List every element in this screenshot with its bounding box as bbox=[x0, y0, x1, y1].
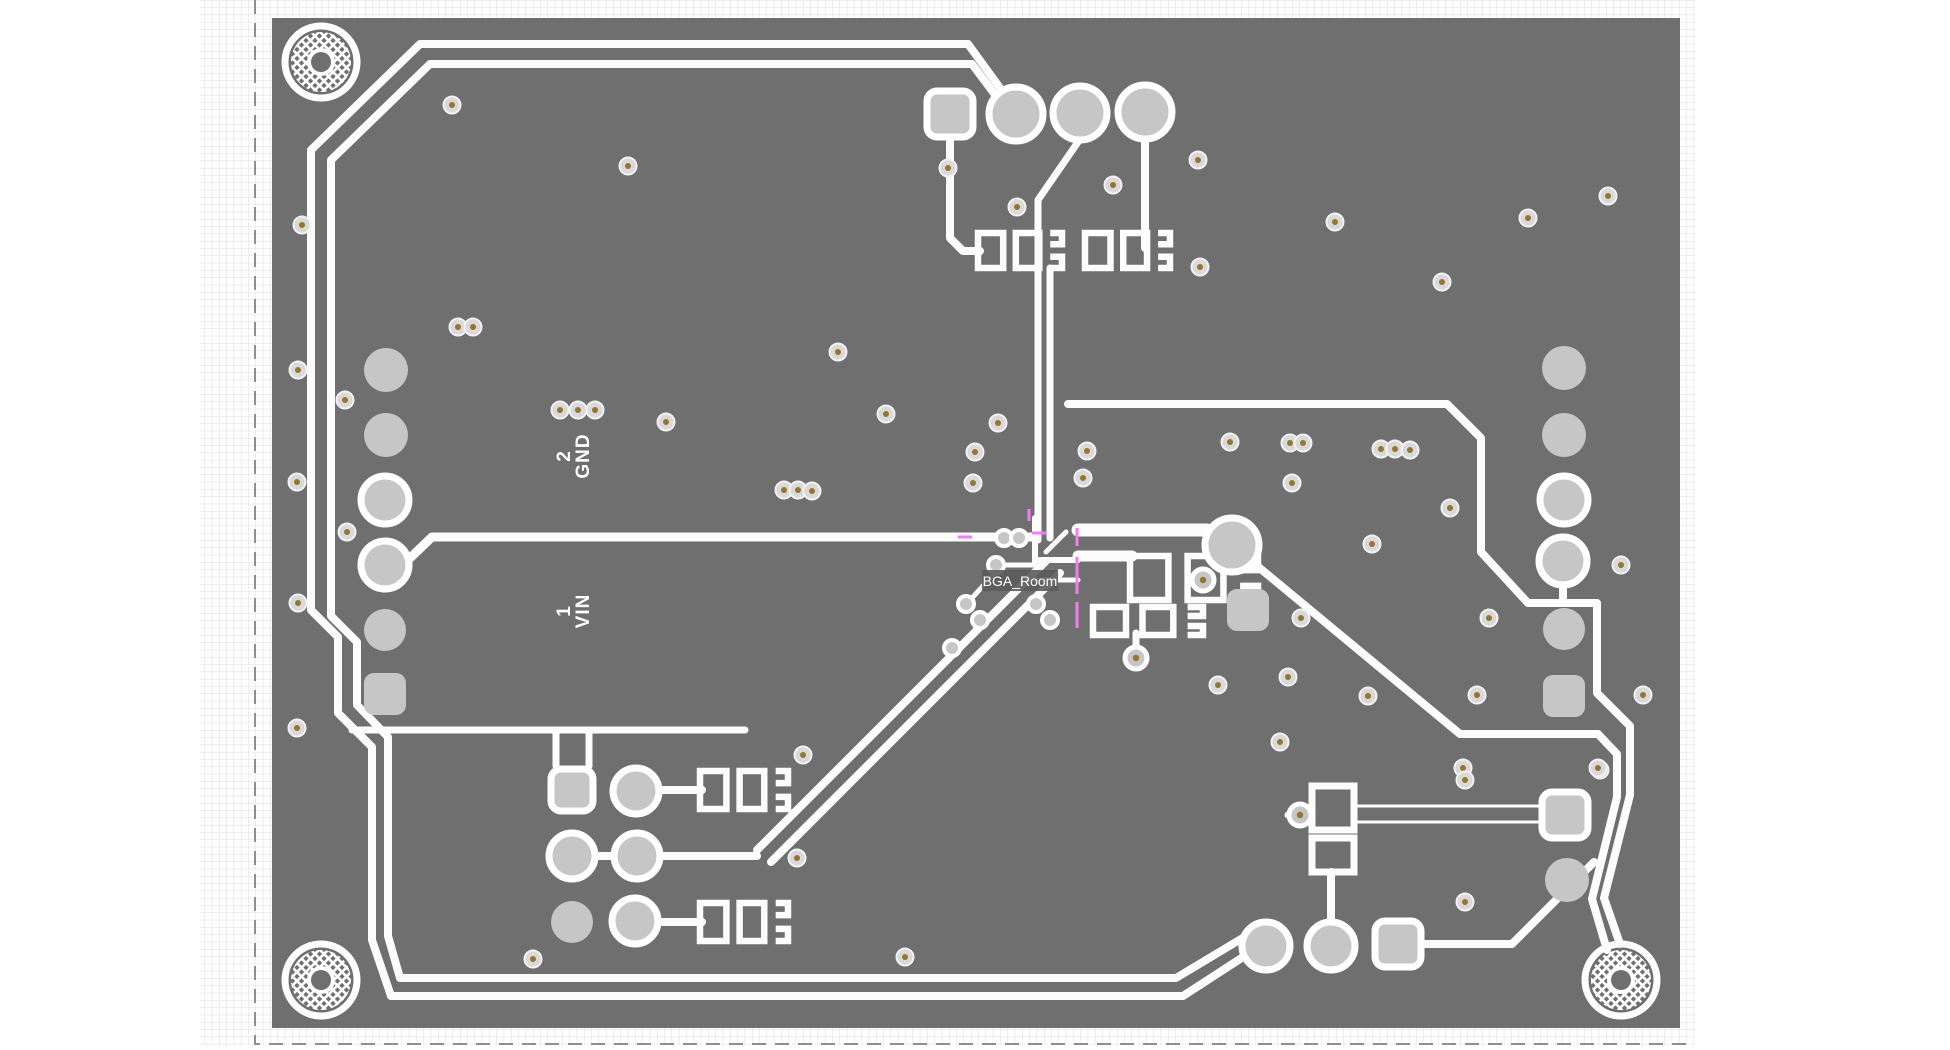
via[interactable] bbox=[795, 747, 812, 764]
via[interactable] bbox=[1190, 152, 1207, 169]
via-drill bbox=[995, 420, 1001, 426]
via-drill bbox=[1525, 215, 1531, 221]
via[interactable] bbox=[1192, 259, 1209, 276]
via[interactable] bbox=[289, 720, 306, 737]
via-drill bbox=[557, 407, 563, 413]
pad-circle[interactable] bbox=[1542, 413, 1586, 457]
bga-room-label[interactable]: BGA_Room bbox=[983, 573, 1058, 589]
bga-mini-pad[interactable] bbox=[1011, 530, 1027, 546]
via-drill bbox=[294, 725, 300, 731]
net-label-vin-number: 1 bbox=[554, 605, 575, 617]
via-drill bbox=[1110, 182, 1116, 188]
via-drill bbox=[1595, 765, 1601, 771]
pad-circle[interactable] bbox=[364, 348, 408, 392]
pad-circle[interactable] bbox=[614, 833, 660, 879]
pad-square[interactable] bbox=[1543, 675, 1585, 717]
pad-square[interactable] bbox=[1227, 589, 1269, 631]
via[interactable] bbox=[444, 97, 461, 114]
via-pad-drill bbox=[1133, 655, 1139, 661]
via-drill bbox=[295, 600, 301, 606]
via-drill bbox=[449, 102, 455, 108]
via[interactable] bbox=[967, 444, 984, 461]
via-drill bbox=[1392, 446, 1398, 452]
via-drill bbox=[1460, 765, 1466, 771]
via[interactable] bbox=[290, 595, 307, 612]
via[interactable] bbox=[1295, 435, 1312, 452]
pad-circle[interactable] bbox=[613, 768, 659, 814]
via[interactable] bbox=[1481, 610, 1498, 627]
via[interactable] bbox=[1105, 177, 1122, 194]
via-drill bbox=[795, 487, 801, 493]
pad-circle[interactable] bbox=[1539, 537, 1587, 585]
mounting-hole-drill bbox=[311, 52, 331, 72]
via[interactable] bbox=[1635, 687, 1652, 704]
mounting-hole[interactable] bbox=[285, 944, 357, 1016]
via-drill bbox=[1486, 615, 1492, 621]
mounting-hole[interactable] bbox=[1585, 944, 1657, 1016]
via[interactable] bbox=[1457, 894, 1474, 911]
via-drill bbox=[800, 752, 806, 758]
pad-circle[interactable] bbox=[551, 901, 593, 943]
net-label-vin-net: VIN bbox=[573, 594, 594, 629]
pad-circle[interactable] bbox=[1545, 858, 1589, 902]
via-drill bbox=[1084, 448, 1090, 454]
via-drill bbox=[1447, 505, 1453, 511]
via[interactable] bbox=[587, 402, 604, 419]
bga-mini-pad[interactable] bbox=[1028, 596, 1044, 612]
pad-circle[interactable] bbox=[361, 541, 409, 589]
via-drill bbox=[1227, 439, 1233, 445]
via-drill bbox=[1439, 279, 1445, 285]
via[interactable] bbox=[1402, 442, 1419, 459]
pad-circle[interactable] bbox=[612, 898, 658, 944]
via-drill bbox=[470, 324, 476, 330]
via[interactable] bbox=[552, 402, 569, 419]
pcb-canvas[interactable]: 2GND1VINBGA_Room bbox=[0, 0, 1950, 1050]
via-drill bbox=[1287, 440, 1293, 446]
via[interactable] bbox=[1434, 274, 1451, 291]
via[interactable] bbox=[1590, 760, 1607, 777]
pad-circle[interactable] bbox=[1242, 922, 1290, 970]
pad-square[interactable] bbox=[364, 673, 406, 715]
via-pad-drill bbox=[1297, 812, 1303, 818]
via-drill bbox=[1378, 446, 1384, 452]
via-drill bbox=[1605, 193, 1611, 199]
via[interactable] bbox=[1600, 188, 1617, 205]
via[interactable] bbox=[1457, 772, 1474, 789]
via-drill bbox=[1407, 447, 1413, 453]
via-drill bbox=[781, 487, 787, 493]
via[interactable] bbox=[1442, 500, 1459, 517]
via-drill bbox=[1277, 739, 1283, 745]
pad-square[interactable] bbox=[927, 91, 973, 137]
via-drill bbox=[294, 479, 300, 485]
pad-circle[interactable] bbox=[1307, 922, 1355, 970]
pad-circle[interactable] bbox=[1053, 86, 1107, 140]
net-label-gnd-number: 2 bbox=[554, 450, 575, 462]
via-drill bbox=[972, 449, 978, 455]
bga-mini-pad[interactable] bbox=[972, 612, 988, 628]
bga-mini-pad[interactable] bbox=[958, 596, 974, 612]
via-drill bbox=[1618, 562, 1624, 568]
via[interactable] bbox=[465, 319, 482, 336]
via-drill bbox=[1332, 219, 1338, 225]
via-drill bbox=[1289, 480, 1295, 486]
via[interactable] bbox=[1222, 434, 1239, 451]
via-drill bbox=[1369, 541, 1375, 547]
pcb-editor-viewport: 2GND1VINBGA_Room bbox=[0, 0, 1950, 1050]
via[interactable] bbox=[1520, 210, 1537, 227]
via[interactable] bbox=[339, 524, 356, 541]
bga-mini-pad[interactable] bbox=[944, 640, 960, 656]
via-drill bbox=[1197, 264, 1203, 270]
pad-square[interactable] bbox=[1542, 792, 1588, 838]
via-drill bbox=[530, 956, 536, 962]
via-drill bbox=[1215, 682, 1221, 688]
pcb-board[interactable] bbox=[272, 18, 1680, 1028]
via-drill bbox=[883, 411, 889, 417]
pad-circle[interactable] bbox=[989, 87, 1043, 141]
mounting-hole-drill bbox=[1611, 970, 1631, 990]
via[interactable] bbox=[658, 414, 675, 431]
via-drill bbox=[809, 488, 815, 494]
via-drill bbox=[1300, 440, 1306, 446]
via-drill bbox=[575, 407, 581, 413]
mounting-hole-drill bbox=[311, 970, 331, 990]
via[interactable] bbox=[1272, 734, 1289, 751]
via[interactable] bbox=[1079, 443, 1096, 460]
via[interactable] bbox=[990, 415, 1007, 432]
via[interactable] bbox=[1210, 677, 1227, 694]
via[interactable] bbox=[1327, 214, 1344, 231]
via-drill bbox=[625, 163, 631, 169]
via-drill bbox=[970, 480, 976, 486]
via[interactable] bbox=[1613, 557, 1630, 574]
via-drill bbox=[794, 855, 800, 861]
pad-square[interactable] bbox=[1375, 921, 1421, 967]
via[interactable] bbox=[290, 362, 307, 379]
via[interactable] bbox=[1364, 536, 1381, 553]
via-drill bbox=[1474, 692, 1480, 698]
via-drill bbox=[344, 529, 350, 535]
via[interactable] bbox=[1075, 470, 1092, 487]
via[interactable] bbox=[337, 392, 354, 409]
via[interactable] bbox=[878, 406, 895, 423]
via[interactable] bbox=[1469, 687, 1486, 704]
via-drill bbox=[663, 419, 669, 425]
pad-circle[interactable] bbox=[1205, 518, 1259, 572]
via[interactable] bbox=[940, 160, 957, 177]
via-drill bbox=[1014, 204, 1020, 210]
via-drill bbox=[902, 954, 908, 960]
pad-circle[interactable] bbox=[549, 833, 595, 879]
via[interactable] bbox=[897, 949, 914, 966]
via-drill bbox=[945, 165, 951, 171]
via-drill bbox=[295, 367, 301, 373]
via[interactable] bbox=[1009, 199, 1026, 216]
pad-circle[interactable] bbox=[1543, 608, 1585, 650]
via-drill bbox=[1462, 899, 1468, 905]
via-drill bbox=[342, 397, 348, 403]
pad-circle[interactable] bbox=[364, 413, 408, 457]
pad-circle[interactable] bbox=[361, 476, 409, 524]
via-drill bbox=[1365, 693, 1371, 699]
via[interactable] bbox=[1293, 610, 1310, 627]
net-label-gnd-net: GND bbox=[573, 433, 594, 478]
via-pad-drill bbox=[1200, 577, 1206, 583]
via[interactable] bbox=[789, 850, 806, 867]
bga-mini-pad[interactable] bbox=[1042, 612, 1058, 628]
via-drill bbox=[1298, 615, 1304, 621]
via[interactable] bbox=[294, 217, 311, 234]
via[interactable] bbox=[965, 475, 982, 492]
mounting-hole[interactable] bbox=[285, 26, 357, 98]
pad-circle[interactable] bbox=[1540, 476, 1588, 524]
pad-circle[interactable] bbox=[1542, 346, 1586, 390]
via-drill bbox=[835, 349, 841, 355]
via[interactable] bbox=[830, 344, 847, 361]
via-drill bbox=[592, 407, 598, 413]
via-drill bbox=[1462, 777, 1468, 783]
via[interactable] bbox=[570, 402, 587, 419]
pad-circle[interactable] bbox=[364, 609, 406, 651]
pad-circle[interactable] bbox=[1118, 85, 1172, 139]
via-drill bbox=[455, 324, 461, 330]
pad-square[interactable] bbox=[551, 769, 593, 811]
via-drill bbox=[1080, 475, 1086, 481]
via-drill bbox=[1195, 157, 1201, 163]
via[interactable] bbox=[525, 951, 542, 968]
via-drill bbox=[1285, 674, 1291, 680]
via[interactable] bbox=[1280, 669, 1297, 686]
via-drill bbox=[299, 222, 305, 228]
via[interactable] bbox=[289, 474, 306, 491]
via-drill bbox=[1640, 692, 1646, 698]
via[interactable] bbox=[1360, 688, 1377, 705]
via[interactable] bbox=[620, 158, 637, 175]
via[interactable] bbox=[1284, 475, 1301, 492]
via[interactable] bbox=[804, 483, 821, 500]
